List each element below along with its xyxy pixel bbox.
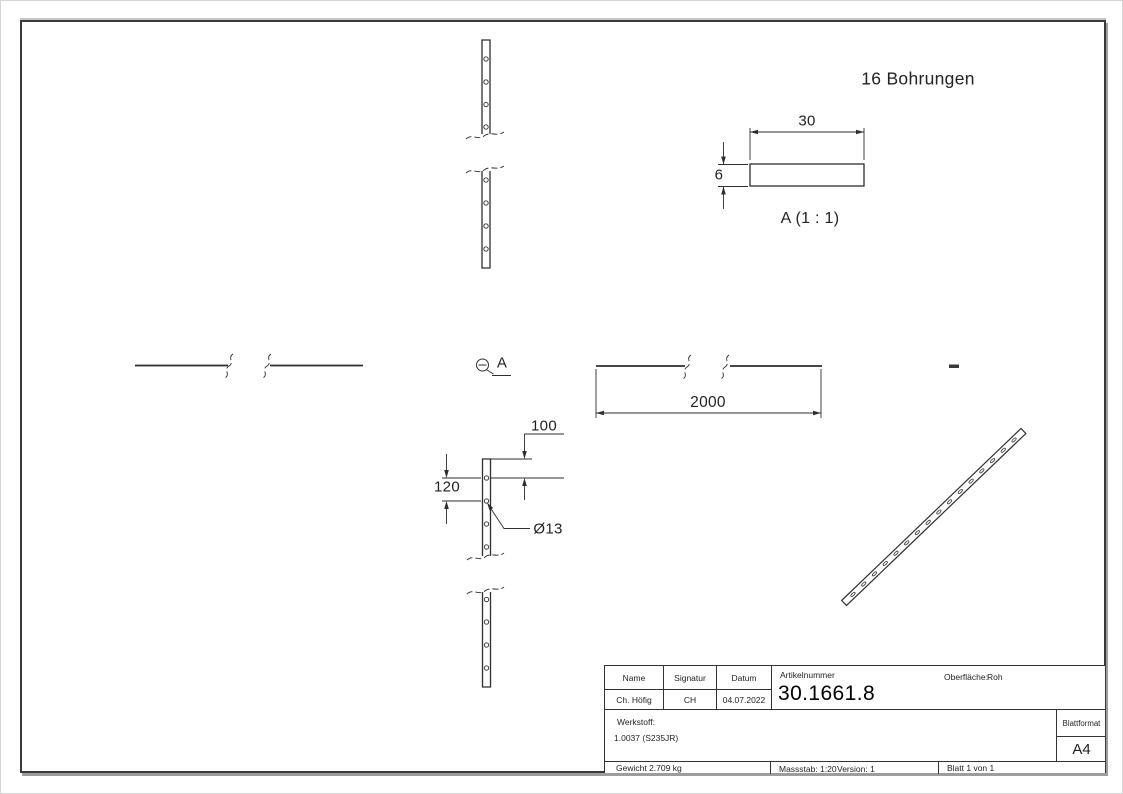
header-date: Datum xyxy=(717,666,772,690)
view-isometric xyxy=(842,428,1026,605)
weight-cell: Gewicht 2.709 kg xyxy=(605,762,771,774)
header-name: Name xyxy=(605,666,664,690)
format-value: A4 xyxy=(1057,737,1106,762)
sheet-count-cell: Blatt 1 von 1 xyxy=(939,762,1106,774)
view-front-upper xyxy=(466,40,504,268)
article-number: 30.1661.8 xyxy=(778,682,875,706)
dim-end-offset: 100 xyxy=(531,418,557,435)
scale-cell: Massstab: 1:20 Version: 1 xyxy=(771,762,939,774)
detail-callout-label: A xyxy=(497,355,507,372)
material-label: Werkstoff: xyxy=(617,717,655,727)
material-value: 1.0037 (S235JR) xyxy=(614,733,678,743)
view-detail-a xyxy=(718,128,864,456)
break-line xyxy=(721,355,729,379)
dim-pitch: 120 xyxy=(434,479,460,496)
material-cell: Werkstoff: 1.0037 (S235JR) xyxy=(605,710,1057,762)
title-block: Name Signatur Datum Ch. Höfig CH 04.07.2… xyxy=(604,665,1105,773)
holes-note: 16 Bohrungen xyxy=(861,69,975,90)
header-signature: Signatur xyxy=(664,666,717,690)
detail-view-label: A (1 : 1) xyxy=(781,210,840,228)
version-value: Version: 1 xyxy=(837,764,875,774)
article-cell: Artikelnummer 30.1661.8 Oberfläche: Roh xyxy=(772,666,1106,710)
view-top-left xyxy=(135,354,363,378)
format-label: Blattformat xyxy=(1057,710,1106,737)
surface-value: Roh xyxy=(987,672,1003,682)
dim-length: 2000 xyxy=(690,394,726,412)
dim-hole-diameter: Ø13 xyxy=(533,521,562,538)
view-end xyxy=(949,365,959,369)
scale-value: Massstab: 1:20 xyxy=(779,764,837,774)
view-front-lower xyxy=(442,434,564,687)
drawing-sheet: 16 Bohrungen 30 6 A (1 : 1) 2000 100 120… xyxy=(0,0,1123,794)
article-label: Artikelnummer xyxy=(780,670,835,680)
break-line xyxy=(683,355,691,379)
dim-profile-width: 30 xyxy=(798,113,815,130)
surface-label: Oberfläche: xyxy=(944,672,988,682)
dim-profile-height: 6 xyxy=(715,167,724,184)
value-signature: CH xyxy=(664,690,717,710)
value-name: Ch. Höfig xyxy=(605,690,664,710)
break-line xyxy=(263,354,271,378)
value-date: 04.07.2022 xyxy=(717,690,772,710)
